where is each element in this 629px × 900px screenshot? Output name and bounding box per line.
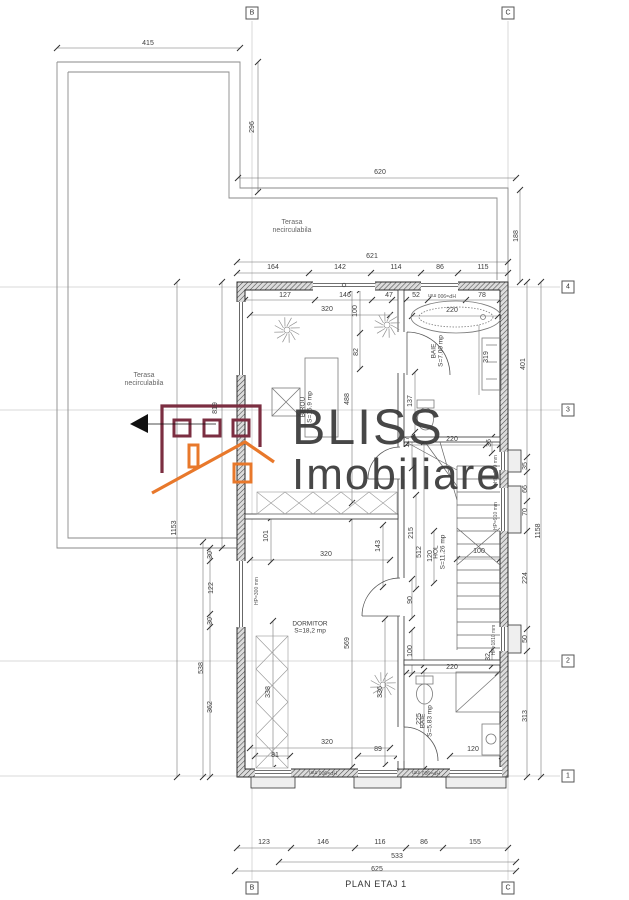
dimension-label: 81 — [271, 752, 279, 760]
dimension-label: 415 — [142, 40, 154, 48]
dimension-label: 66 — [522, 485, 530, 493]
dimension-label: 320 — [320, 551, 332, 559]
dimension-label: 114 — [390, 264, 401, 272]
dimension-label: 30 — [207, 617, 215, 625]
dimension-label: 137 — [407, 395, 415, 407]
dimension-label: 533 — [391, 853, 403, 861]
dimension-label: 100 — [352, 305, 360, 317]
room-label: BAIE S=5.83 mp — [420, 705, 435, 737]
dimension-label: 220 — [446, 436, 458, 444]
grid-marker-1: 1 — [562, 770, 575, 783]
logo-roof — [152, 442, 274, 493]
room-label: BAIE S=7.00 mp — [431, 335, 446, 367]
arrow-head-icon — [130, 414, 148, 433]
dimension-label: 30 — [207, 551, 215, 559]
floor-plan-page: BLISS Imobiliare 41529662018862116414211… — [0, 0, 629, 900]
dimension-label: 362 — [207, 701, 215, 713]
logo-chimney — [189, 445, 198, 467]
room-label: BIROU S=15.9 mp — [300, 391, 315, 423]
window-height-label: HP=900 mm — [309, 768, 337, 774]
watermark-brand: BLISS — [292, 398, 444, 456]
dimension-label: 220 — [446, 664, 458, 672]
dimension-label: 127 — [279, 292, 291, 300]
terrace-label: Terasa necirculabila — [273, 219, 312, 235]
watermark-brand-sub: Imobiliare — [292, 450, 503, 500]
dimension-label: 625 — [371, 866, 383, 874]
grid-marker-3: 3 — [562, 404, 575, 417]
dimension-label: 52 — [412, 292, 420, 300]
dimension-label: 123 — [258, 839, 270, 847]
room-label: HOL S=11.26 mp — [433, 535, 448, 570]
logo-window-2 — [204, 420, 220, 436]
dimension-label: 117 — [404, 436, 412, 447]
window-height-label: HP=1810 mm — [492, 625, 498, 656]
dimension-label: 86 — [436, 264, 444, 272]
dimension-label: 70 — [522, 508, 530, 516]
dimension-label: 401 — [520, 358, 528, 370]
window-glazing — [240, 284, 505, 774]
dimension-label: 538 — [198, 662, 206, 674]
window-height-label: HP=300 mm — [494, 455, 500, 483]
grid-marker-4: 4 — [562, 281, 575, 294]
window-height-label: HP=910 mm — [494, 502, 500, 530]
dimension-label: 122 — [208, 582, 216, 594]
dimension-label: 320 — [321, 739, 333, 747]
exterior-walls — [237, 282, 508, 777]
dimension-label: 82 — [353, 348, 361, 356]
dimension-label: 101 — [263, 530, 271, 542]
dimension-label: 620 — [374, 169, 386, 177]
bathtub — [411, 301, 501, 333]
dimension-label: 1158 — [535, 523, 543, 538]
dimension-label: 164 — [267, 264, 279, 272]
window-height-label: HP=900 mm — [428, 291, 456, 297]
toilet-bath2 — [416, 676, 433, 684]
dimension-label: 86 — [420, 839, 428, 847]
dimension-label: 120 — [467, 746, 479, 754]
dimension-label: 146 — [339, 292, 351, 300]
grid-marker-b: B — [246, 882, 259, 895]
dimension-label: 143 — [375, 540, 383, 552]
dimension-label: 224 — [522, 572, 530, 584]
dimension-label: 621 — [366, 253, 378, 261]
vanity-bath2 — [482, 724, 500, 755]
dimension-label: 100 — [407, 645, 415, 657]
wall-openings — [235, 280, 509, 778]
dimension-label: 47 — [385, 292, 393, 300]
dimension-label: 313 — [522, 710, 530, 722]
grid-marker-c: C — [502, 882, 515, 895]
dimension-label: 512 — [416, 546, 424, 558]
fixtures — [272, 301, 501, 755]
dimension-label: 89 — [374, 746, 382, 754]
bliss-logo — [152, 406, 274, 493]
dimension-label: 100 — [473, 548, 485, 556]
window-height-label: HP=900 mm — [412, 768, 440, 774]
grid-marker-b: B — [246, 7, 259, 20]
dimension-label: 116 — [374, 839, 385, 847]
dimension-label: 36 — [486, 439, 494, 447]
dimension-label: 569 — [344, 637, 352, 649]
dimension-label: 320 — [321, 306, 333, 314]
dimension-label: 819 — [212, 402, 220, 414]
dimension-label: 50 — [522, 635, 530, 643]
dimension-label: 215 — [408, 527, 416, 539]
dimension-label: 115 — [477, 264, 488, 272]
dimension-label: 319 — [483, 351, 491, 363]
dimension-label: 296 — [249, 121, 257, 133]
dimension-label: 1153 — [171, 520, 179, 535]
dimension-label: 336 — [377, 686, 385, 698]
dimension-label: 220 — [446, 307, 458, 315]
room-label: DORMITOR S=18,2 mp — [292, 621, 327, 636]
logo-window-1 — [174, 420, 190, 436]
dimension-label: 146 — [317, 839, 329, 847]
grid-marker-c: C — [502, 7, 515, 20]
plants — [274, 312, 400, 698]
dimension-label: 78 — [478, 292, 486, 300]
dimension-label: 90 — [407, 596, 415, 604]
vanity-bath1 — [482, 338, 501, 390]
plan-title: PLAN ETAJ 1 — [345, 879, 406, 889]
dimension-label: 142 — [334, 264, 346, 272]
terrace-label: Terasa necirculabila — [125, 372, 164, 388]
dimension-label: 188 — [513, 230, 521, 242]
dimension-label: 155 — [469, 839, 481, 847]
dimension-label: 35 — [522, 462, 530, 470]
dimension-label: 488 — [344, 393, 352, 405]
dimension-label: 338 — [265, 686, 273, 698]
window-height-label: HP=300 mm — [255, 577, 261, 605]
grid-marker-2: 2 — [562, 655, 575, 668]
